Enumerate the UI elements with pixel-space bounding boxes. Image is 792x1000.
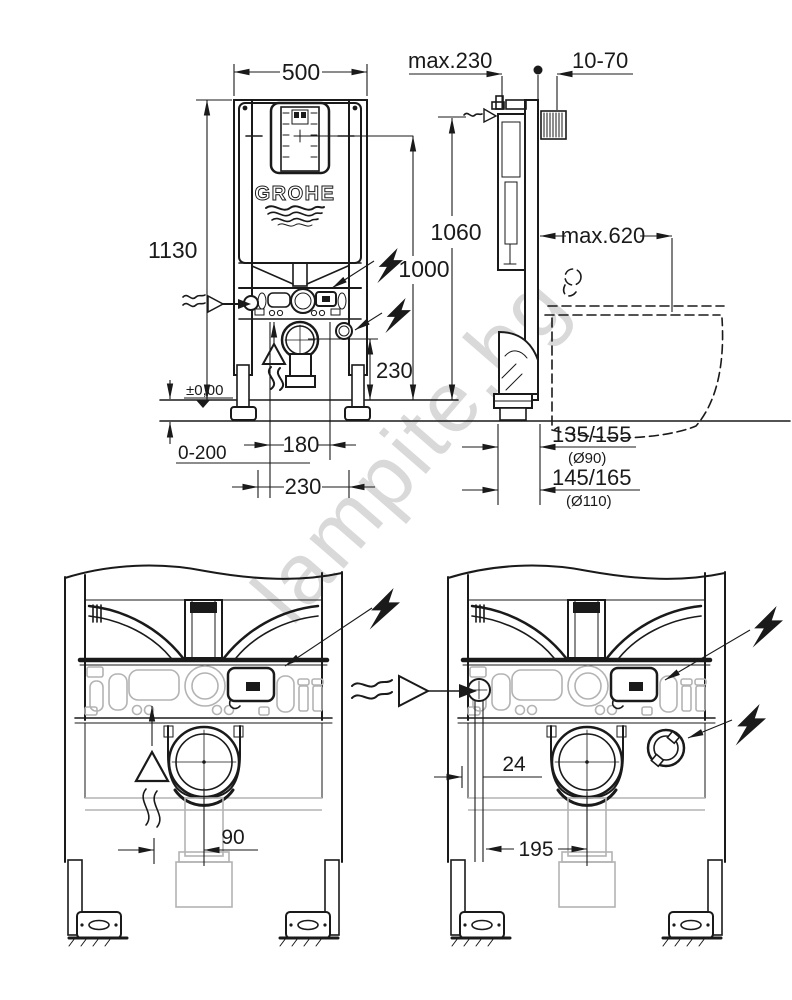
floor-level-label: ±0,00	[186, 382, 223, 399]
dim-depth-max230: max.230	[408, 48, 492, 73]
dim-height-1000: 1000	[398, 256, 449, 282]
dim-outlet-height-230: 230	[376, 358, 413, 383]
dim-floor-range: 0-200	[178, 443, 227, 464]
dim-supply-90: 90	[221, 826, 244, 849]
valve-row	[244, 289, 346, 316]
waste-bend	[282, 322, 318, 358]
power-outlet-hole	[336, 323, 352, 339]
vent-arrow	[263, 322, 285, 390]
warning-triangle-icon	[263, 344, 285, 364]
dim-outlet110-height: 145/165	[552, 465, 632, 490]
dim-width-500: 500	[282, 59, 320, 85]
detail-view-left: 90	[65, 566, 400, 946]
water-supply-arrow-top	[464, 109, 496, 122]
dim-height-1130: 1130	[148, 237, 197, 263]
dim-outlet110-pipe: (Ø110)	[566, 493, 612, 510]
dim-outlet90-height: 135/155	[552, 422, 632, 447]
wall-mount-block	[541, 111, 566, 139]
reference-dot	[534, 66, 543, 75]
dim-projection: max.620	[561, 223, 645, 248]
detail-view-right: 24 195	[352, 566, 783, 946]
dim-24: 24	[434, 753, 542, 788]
dim-inlet-195: 195	[518, 838, 553, 861]
grohe-logo: GROHE	[255, 183, 336, 226]
dim-spacing-180: 180	[283, 432, 320, 457]
grohe-logo-text: GROHE	[255, 183, 336, 205]
vent-arrow	[136, 706, 168, 827]
foot-bracket	[345, 407, 370, 420]
power-socket	[648, 730, 684, 766]
dim-wall-range: 10-70	[572, 48, 628, 73]
water-supply-arrow	[352, 676, 477, 706]
inspection-shaft	[271, 103, 329, 173]
ceramic-pan-outline	[545, 269, 724, 438]
level-mark-icon	[196, 400, 210, 408]
dim-spacing-230: 230	[285, 474, 322, 499]
drawing-canvas: lampite.bg GROHE	[0, 0, 792, 1000]
foot-bracket	[231, 407, 256, 420]
technical-drawing: lampite.bg GROHE	[0, 0, 792, 1000]
dim-inlet-24: 24	[502, 753, 526, 776]
dim-90: 90	[118, 788, 258, 866]
warning-triangle-icon	[136, 752, 168, 781]
dim-height-1060: 1060	[430, 219, 481, 245]
side-view	[464, 96, 724, 438]
